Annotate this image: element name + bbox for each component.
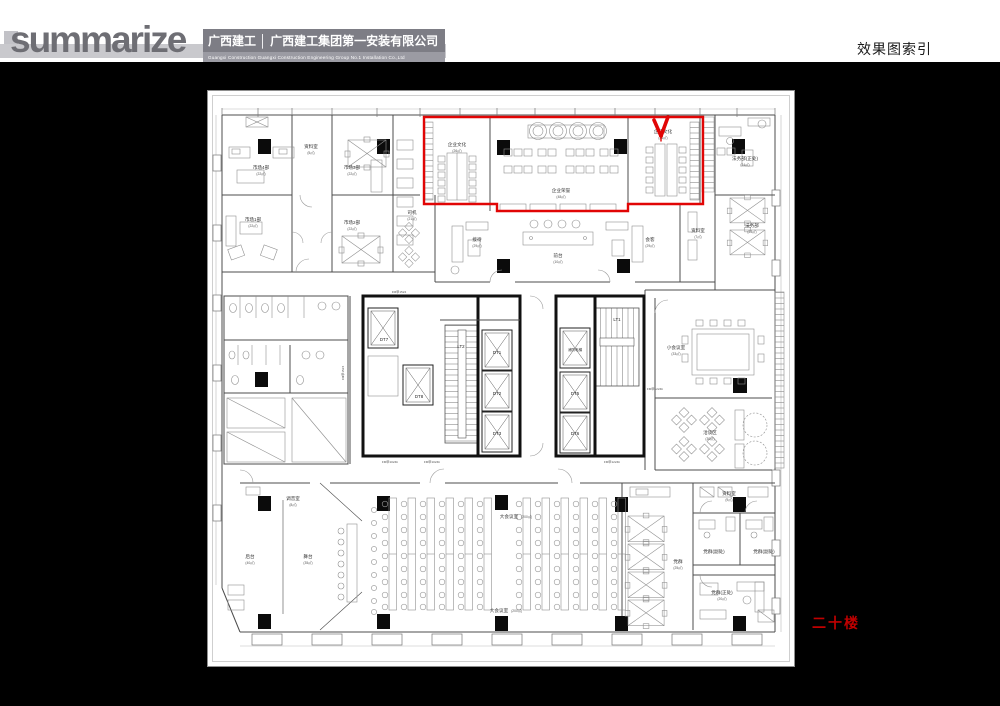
svg-text:DT6: DT6 bbox=[571, 431, 580, 436]
svg-text:(40㎡): (40㎡) bbox=[245, 560, 254, 565]
svg-text:DT3: DT3 bbox=[493, 431, 502, 436]
svg-text:调音室: 调音室 bbox=[286, 495, 300, 502]
svg-text:(9㎡): (9㎡) bbox=[725, 497, 732, 502]
svg-text:(26㎡): (26㎡) bbox=[452, 148, 461, 153]
slide-canvas: summarize 广西建工 │ 广西建工集团第一安装有限公司 Guangxi … bbox=[0, 0, 1000, 706]
svg-text:(29㎡): (29㎡) bbox=[645, 243, 654, 248]
svg-text:DT7: DT7 bbox=[380, 337, 389, 342]
svg-text:FM甲1524: FM甲1524 bbox=[341, 366, 345, 381]
svg-text:大会议室(200㎡): 大会议室(200㎡) bbox=[500, 513, 532, 520]
svg-text:(5㎡): (5㎡) bbox=[307, 150, 314, 155]
svg-text:(30㎡): (30㎡) bbox=[705, 436, 714, 441]
svg-text:DT8: DT8 bbox=[415, 394, 424, 399]
svg-text:司机: 司机 bbox=[407, 209, 417, 216]
svg-text:消防电梯: 消防电梯 bbox=[568, 347, 583, 352]
svg-text:市场2部: 市场2部 bbox=[344, 219, 361, 226]
svg-text:党群: 党群 bbox=[673, 558, 683, 565]
svg-text:接待: 接待 bbox=[472, 236, 482, 243]
svg-text:资料室: 资料室 bbox=[691, 227, 705, 234]
svg-text:法务部(正处): 法务部(正处) bbox=[732, 155, 758, 162]
svg-text:大会议室(200㎡): 大会议室(200㎡) bbox=[490, 607, 522, 614]
floor-plan-drawing: 市场4部 (22㎡) 市场3部 (22㎡) 资料室 (5㎡) 市场1部 (22㎡… bbox=[0, 0, 1000, 706]
svg-text:DT5: DT5 bbox=[571, 391, 580, 396]
svg-text:(20㎡): (20㎡) bbox=[717, 596, 726, 601]
svg-text:(48㎡): (48㎡) bbox=[556, 194, 565, 199]
svg-text:(22㎡): (22㎡) bbox=[347, 171, 356, 176]
svg-text:LT2: LT2 bbox=[457, 344, 465, 349]
svg-text:FM甲1024b: FM甲1024b bbox=[424, 460, 440, 464]
svg-text:(8㎡): (8㎡) bbox=[289, 502, 296, 507]
elevator-core-right bbox=[556, 296, 644, 456]
svg-text:洽谈区: 洽谈区 bbox=[703, 429, 717, 436]
svg-text:前台: 前台 bbox=[553, 252, 563, 259]
svg-text:市场1部: 市场1部 bbox=[245, 216, 262, 223]
svg-text:(22㎡): (22㎡) bbox=[256, 171, 265, 176]
svg-text:市场3部: 市场3部 bbox=[344, 164, 361, 171]
svg-text:(22㎡): (22㎡) bbox=[347, 226, 356, 231]
svg-text:资料室: 资料室 bbox=[722, 490, 736, 497]
toilet-block bbox=[224, 296, 348, 464]
svg-text:(21㎡): (21㎡) bbox=[407, 216, 416, 221]
svg-text:(22㎡): (22㎡) bbox=[248, 223, 257, 228]
svg-text:企业荣誉: 企业荣誉 bbox=[552, 187, 571, 194]
svg-text:舞台: 舞台 bbox=[303, 553, 313, 560]
svg-text:(24㎡): (24㎡) bbox=[740, 162, 749, 167]
svg-text:FM甲1224b: FM甲1224b bbox=[604, 460, 620, 464]
svg-text:小会议室: 小会议室 bbox=[667, 344, 686, 351]
svg-text:FM甲1524: FM甲1524 bbox=[392, 290, 407, 294]
svg-text:(25㎡): (25㎡) bbox=[673, 565, 682, 570]
svg-text:后台: 后台 bbox=[245, 553, 255, 560]
svg-text:DT2: DT2 bbox=[493, 391, 502, 396]
floor-number-label: 二十楼 bbox=[812, 613, 860, 633]
svg-text:(35㎡): (35㎡) bbox=[303, 560, 312, 565]
svg-text:党群(副处): 党群(副处) bbox=[703, 548, 725, 555]
svg-text:(33㎡): (33㎡) bbox=[671, 351, 680, 356]
svg-text:FM甲1024b: FM甲1024b bbox=[382, 460, 398, 464]
svg-text:FM甲1224b: FM甲1224b bbox=[647, 387, 663, 391]
svg-text:会客: 会客 bbox=[645, 236, 655, 243]
svg-text:(29㎡): (29㎡) bbox=[472, 243, 481, 248]
svg-text:市场4部: 市场4部 bbox=[253, 164, 270, 171]
svg-text:(10㎡): (10㎡) bbox=[553, 259, 562, 264]
svg-text:(23㎡): (23㎡) bbox=[747, 229, 756, 234]
svg-text:DT1: DT1 bbox=[493, 350, 502, 355]
svg-text:(7㎡): (7㎡) bbox=[694, 234, 701, 239]
svg-text:法务部: 法务部 bbox=[745, 222, 759, 229]
svg-text:LT1: LT1 bbox=[613, 317, 621, 322]
svg-text:党群(副处): 党群(副处) bbox=[753, 548, 775, 555]
svg-text:企业文化: 企业文化 bbox=[448, 141, 467, 148]
svg-text:资料室: 资料室 bbox=[304, 143, 318, 150]
svg-text:党群(正处): 党群(正处) bbox=[711, 589, 733, 596]
